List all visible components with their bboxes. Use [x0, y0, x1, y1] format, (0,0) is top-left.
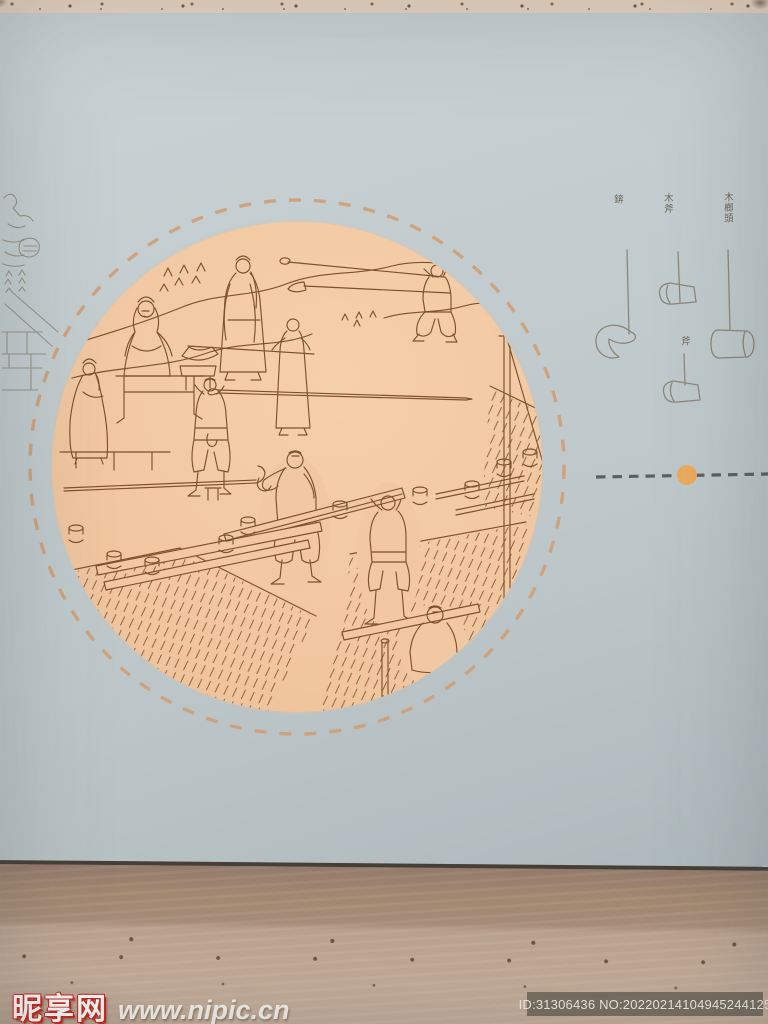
watermark-site-url: www.nipic.cn [118, 995, 290, 1024]
museum-panel-photo: 錛 木斧 斧 木榔頭 昵享网 www.nipic.cn ID:31306436 … [0, 0, 768, 1024]
tool-label-adze: 錛 [611, 194, 622, 205]
tool-label-mallet: 木榔頭 [721, 192, 732, 224]
stock-id-badge: ID:31306436 NO:20220214104945244125 [527, 992, 763, 1016]
seated-overseer [116, 297, 218, 423]
long-sweep-oar [208, 389, 472, 400]
left-robed-figure [70, 359, 108, 464]
wall-strip [0, 0, 768, 13]
tool-label-wood-axe: 木斧 [661, 193, 672, 214]
boatyard-illustration [52, 222, 542, 712]
watermark: 昵享网 www.nipic.cn [12, 984, 290, 1024]
watermark-site-name: 昵享网 [12, 984, 108, 1024]
tool-label-axe: 斧 [678, 336, 689, 347]
circular-illustration-disc [52, 222, 542, 712]
standing-official [220, 256, 266, 380]
hooked-sweep [64, 466, 265, 491]
